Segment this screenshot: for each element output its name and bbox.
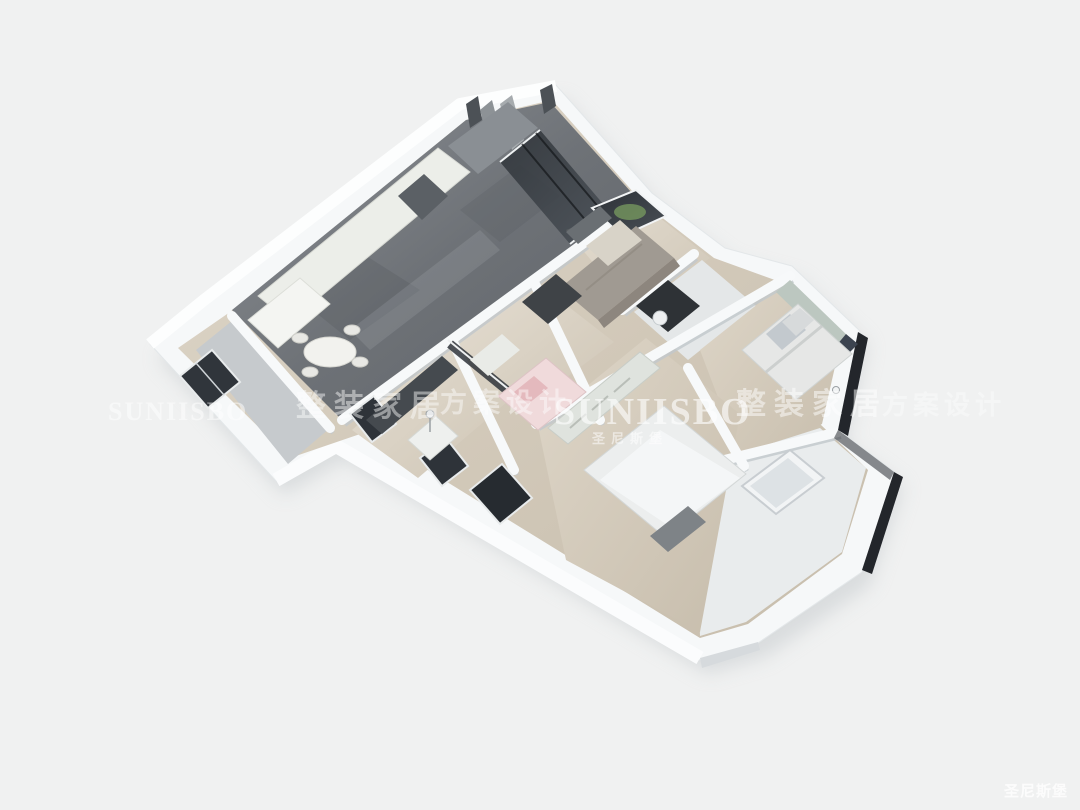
watermark-text: 方案设计 [882, 390, 1006, 421]
watermark-text-main: SUNIISBO [554, 391, 752, 433]
dining-chair [302, 367, 318, 377]
dining-chair [344, 325, 360, 335]
watermark-text: 整装家居 [296, 389, 448, 424]
watermark-text: SUNIISBO [108, 397, 248, 426]
floorplan-scene: SUNIISBO 整装家居 方案设计 SUNIISBO 圣尼斯堡 整装家居 方案… [0, 0, 1080, 810]
washer [653, 311, 667, 325]
watermark-text: 方案设计 [440, 387, 572, 419]
dining-table [304, 337, 356, 367]
floorplan-render-canvas: SUNIISBO 整装家居 方案设计 SUNIISBO 圣尼斯堡 整装家居 方案… [0, 0, 1080, 810]
dining-chair [292, 333, 308, 343]
watermark-text: 整装家居 [736, 387, 888, 422]
dining-chair [352, 357, 368, 367]
watermark-corner: 圣尼斯堡 [1003, 782, 1068, 800]
watermark-subtext: 圣尼斯堡 [592, 431, 668, 447]
